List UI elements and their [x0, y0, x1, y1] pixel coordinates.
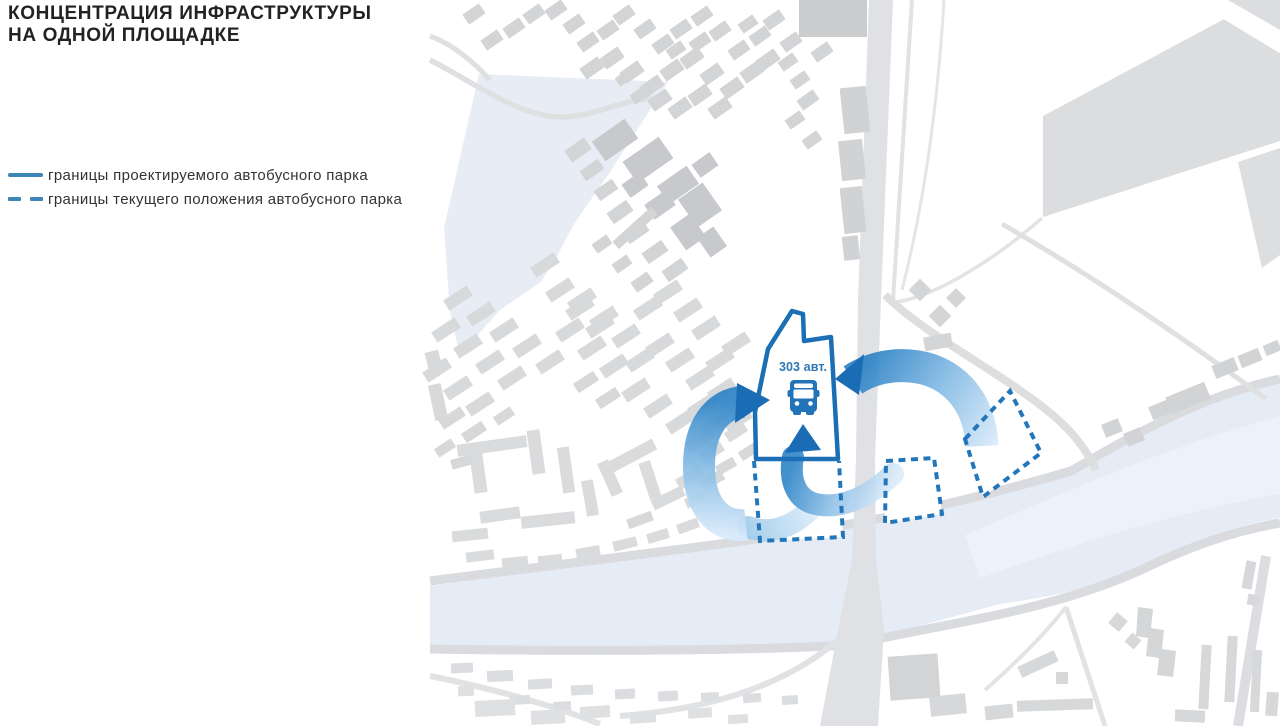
svg-text:303 авт.: 303 авт.: [779, 360, 827, 374]
